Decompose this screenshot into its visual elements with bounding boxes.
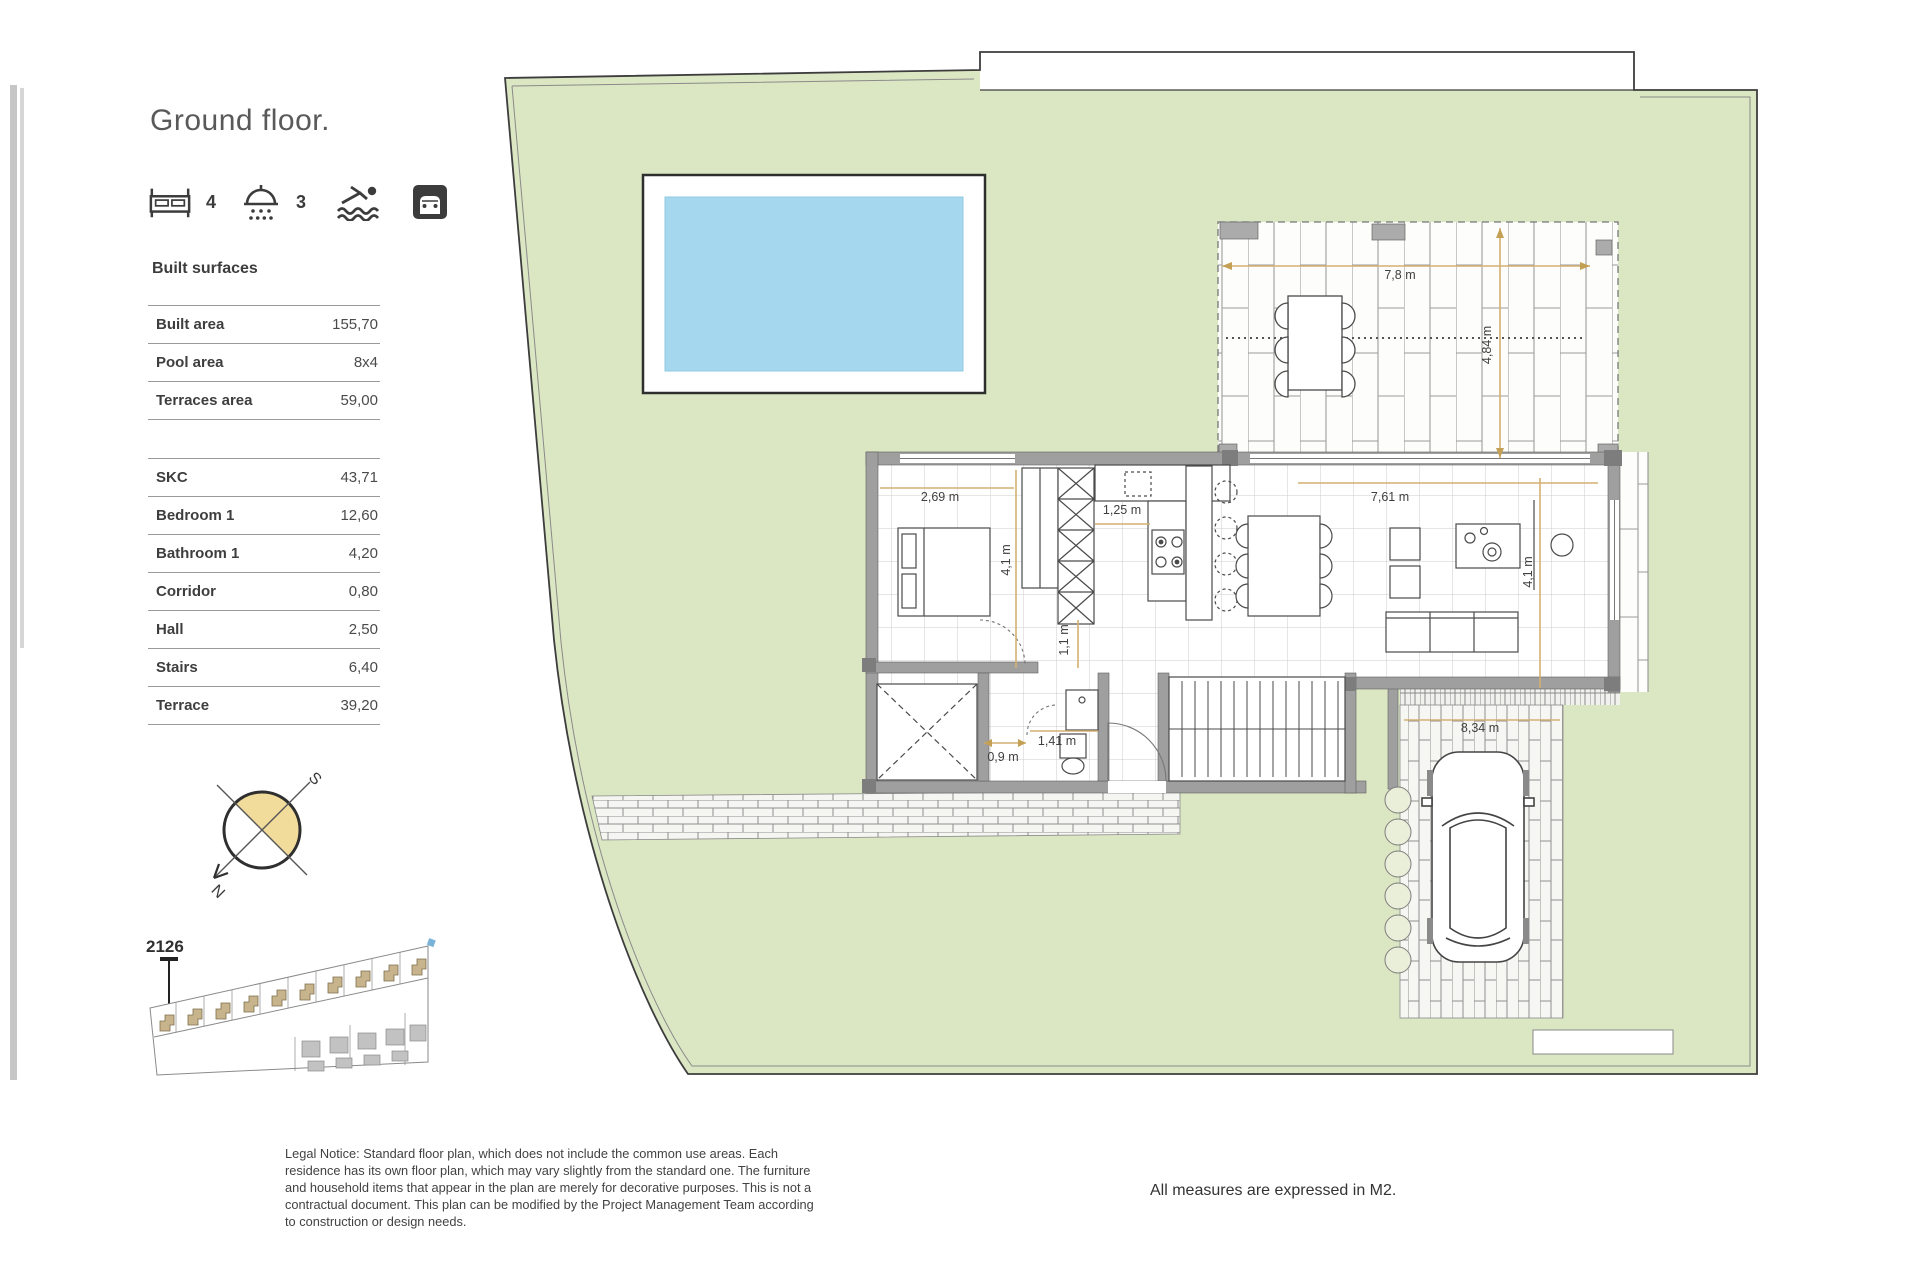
surface-label: Terrace [148, 697, 209, 714]
table-row: SKC 43,71 [148, 458, 380, 496]
dim-hall: 0,9 m [973, 750, 1033, 764]
surface-value: 39,20 [340, 697, 380, 714]
surface-label: Hall [148, 621, 184, 638]
unit-number: 2126 [146, 937, 184, 956]
surface-label: Bedroom 1 [148, 507, 234, 524]
surface-label: Built area [148, 316, 224, 333]
dim-bedroom-width: 2,69 m [900, 490, 980, 504]
surfaces-summary-table: Built area 155,70 Pool area 8x4 Terraces… [148, 305, 380, 420]
table-row: Bedroom 1 12,60 [148, 496, 380, 534]
surface-label: Corridor [148, 583, 216, 600]
feature-icons: 4 3 [148, 182, 448, 222]
compass-south-label: S [305, 769, 325, 789]
compass-north-label: N [208, 882, 228, 902]
terrace-pergola [1218, 222, 1618, 465]
dim-corridor: 1,1 m [1057, 617, 1071, 663]
walkway-path [592, 791, 1180, 840]
surface-value: 43,71 [340, 469, 380, 486]
surfaces-heading: Built surfaces [152, 260, 258, 278]
car [1422, 752, 1534, 962]
development-outline [150, 946, 428, 1075]
table-row: Corridor 0,80 [148, 572, 380, 610]
dim-living-width: 7,61 m [1350, 490, 1430, 504]
surface-value: 59,00 [340, 392, 380, 409]
surface-label: SKC [148, 469, 188, 486]
dim-living-height: 4,1 m [1521, 547, 1535, 597]
swimmer-icon [336, 183, 382, 221]
surface-value: 0,80 [349, 583, 380, 600]
site-plan: 2126 [110, 925, 450, 1095]
shower-icon [240, 182, 282, 222]
surface-label: Bathroom 1 [148, 545, 239, 562]
bed-icon [148, 184, 192, 220]
surface-label: Terraces area [148, 392, 252, 409]
dim-terrace-width: 7,8 m [1360, 268, 1440, 282]
scan-streaks [10, 85, 24, 1080]
stove [1152, 530, 1184, 574]
outdoor-dining-set [1275, 296, 1355, 397]
surface-value: 4,20 [349, 545, 380, 562]
measures-note: All measures are expressed in M2. [1150, 1182, 1396, 1200]
dim-terrace-height: 4,84 m [1480, 315, 1494, 375]
dim-bathroom: 1,41 m [1022, 734, 1092, 748]
table-row: Bathroom 1 4,20 [148, 534, 380, 572]
table-row: Terrace 39,20 [148, 686, 380, 725]
surface-value: 12,60 [340, 507, 380, 524]
compass: S N [200, 765, 330, 905]
table-row: Terraces area 59,00 [148, 381, 380, 420]
surface-value: 2,50 [349, 621, 380, 638]
dim-kitchen: 1,25 m [1087, 503, 1157, 517]
table-row: Pool area 8x4 [148, 343, 380, 381]
bedroom-count: 4 [206, 192, 216, 213]
surface-value: 6,40 [349, 659, 380, 676]
surface-label: Pool area [148, 354, 224, 371]
wardrobe [1058, 468, 1094, 624]
table-row: Stairs 6,40 [148, 648, 380, 686]
surface-value: 155,70 [332, 316, 380, 333]
dining-set [1236, 516, 1332, 616]
bathroom-count: 3 [296, 192, 306, 213]
dim-driveway: 8,34 m [1440, 721, 1520, 735]
surfaces-rooms-table: SKC 43,71 Bedroom 1 12,60 Bathroom 1 4,2… [148, 458, 380, 725]
storage-room [877, 684, 977, 780]
table-row: Built area 155,70 [148, 305, 380, 343]
dim-bedroom-height: 4,1 m [999, 535, 1013, 585]
table-row: Hall 2,50 [148, 610, 380, 648]
stairs [1169, 677, 1345, 781]
garage-icon [412, 184, 448, 220]
surface-label: Stairs [148, 659, 198, 676]
island-counter [1186, 466, 1212, 620]
page-title: Ground floor. [150, 104, 330, 138]
pool [643, 175, 985, 393]
legal-notice: Legal Notice: Standard floor plan, which… [285, 1146, 822, 1230]
surface-value: 8x4 [354, 354, 380, 371]
